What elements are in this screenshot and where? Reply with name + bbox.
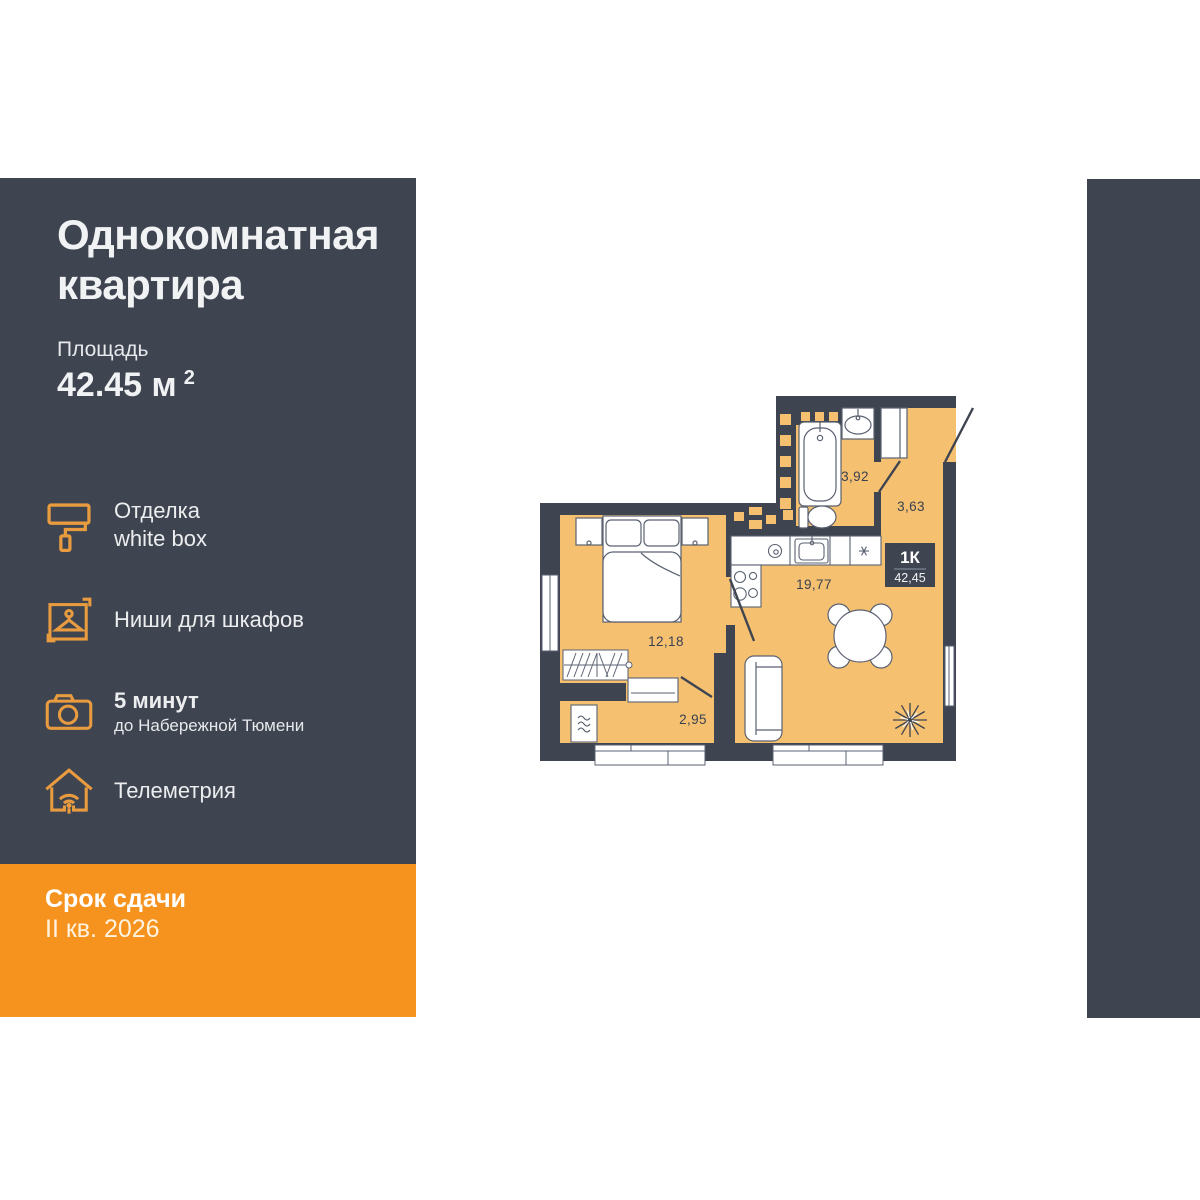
unit-area: 42,45 <box>894 571 925 585</box>
area-number: 42.45 м <box>57 366 177 404</box>
feature-telemetry-text: Телеметрия <box>114 777 236 805</box>
deadline-label: Срок сдачи <box>45 885 186 914</box>
camera-icon <box>40 683 98 741</box>
feature-niches: Ниши для шкафов <box>40 591 304 649</box>
wardrobe-rail <box>563 650 632 680</box>
feature-telemetry-line1: Телеметрия <box>114 777 236 805</box>
house-wifi-icon <box>40 762 98 820</box>
sink <box>842 408 874 439</box>
toilet <box>799 506 836 528</box>
info-panel: Однокомнатная квартира Площадь 42.45 м2 … <box>0 178 416 864</box>
feature-telemetry: Телеметрия <box>40 762 236 820</box>
feature-finish-line1: Отделка <box>114 497 207 525</box>
feature-distance: 5 минут до Набережной Тюмени <box>40 683 304 741</box>
feature-niches-text: Ниши для шкафов <box>114 606 304 634</box>
feature-distance-text: 5 минут до Набережной Тюмени <box>114 687 304 737</box>
hanger-icon <box>40 591 98 649</box>
area-sup: 2 <box>184 367 195 389</box>
hall-cabinet <box>881 408 907 458</box>
deadline-value: II кв. 2026 <box>45 915 160 944</box>
deadline-box: Срок сдачи II кв. 2026 <box>0 864 416 1017</box>
bathtub <box>799 422 841 506</box>
water-heater <box>571 705 597 742</box>
room-area-kitchen-living: 19,77 <box>796 577 832 592</box>
room-area-hallway: 3,63 <box>897 499 925 514</box>
floor-plan: 1К 42,45 3,92 3,63 19,77 12,18 2,95 <box>533 388 978 778</box>
sofa <box>745 656 782 741</box>
feature-finish-line2: white box <box>114 525 207 553</box>
room-area-wardrobe: 2,95 <box>679 712 707 727</box>
dining-set <box>828 604 892 668</box>
kitchen-counter <box>731 536 881 565</box>
feature-niches-line1: Ниши для шкафов <box>114 606 304 634</box>
page-title: Однокомнатная квартира <box>57 210 387 310</box>
unit-label: 1К <box>900 548 920 567</box>
feature-distance-line1: 5 минут <box>114 687 304 715</box>
right-decorative-bar <box>1087 179 1200 1018</box>
room-area-bedroom: 12,18 <box>648 634 684 649</box>
paint-roller-icon <box>40 496 98 554</box>
listing-card: Однокомнатная квартира Площадь 42.45 м2 … <box>0 0 1200 1200</box>
area-label: Площадь <box>57 338 148 362</box>
shelf <box>628 678 678 702</box>
feature-finish-text: Отделка white box <box>114 497 207 553</box>
unit-badge: 1К 42,45 <box>885 543 935 587</box>
feature-distance-line2: до Набережной Тюмени <box>114 715 304 737</box>
stove <box>731 565 761 607</box>
feature-finish: Отделка white box <box>40 496 207 554</box>
area-value: 42.45 м2 <box>57 366 195 405</box>
room-area-bathroom: 3,92 <box>841 469 869 484</box>
